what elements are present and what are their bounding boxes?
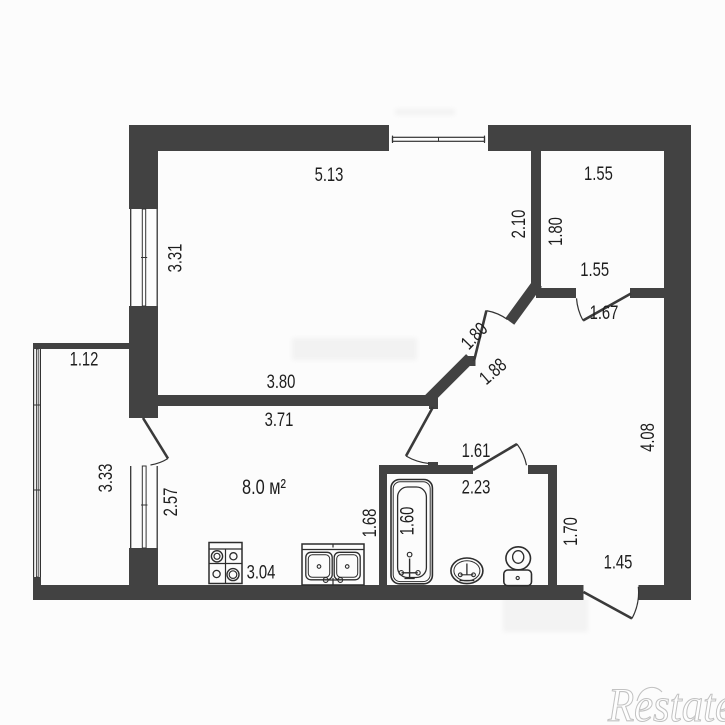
svg-text:1.61: 1.61 — [462, 440, 491, 461]
svg-text:1.60: 1.60 — [397, 507, 418, 536]
svg-text:2.10: 2.10 — [508, 210, 529, 239]
svg-text:3.33: 3.33 — [95, 464, 116, 493]
svg-text:1.12: 1.12 — [70, 349, 99, 370]
svg-text:3.04: 3.04 — [247, 562, 276, 583]
svg-text:3.31: 3.31 — [165, 244, 186, 273]
svg-text:1.80: 1.80 — [545, 217, 566, 246]
svg-text:Restate: Restate — [607, 679, 725, 725]
svg-text:3.71: 3.71 — [265, 409, 294, 430]
svg-text:1.45: 1.45 — [604, 552, 633, 573]
svg-text:1.67: 1.67 — [590, 302, 619, 323]
svg-text:5.13: 5.13 — [315, 164, 344, 185]
svg-text:1.70: 1.70 — [560, 517, 581, 546]
svg-text:2.23: 2.23 — [462, 477, 491, 498]
svg-text:1.55: 1.55 — [584, 163, 613, 184]
svg-text:2.57: 2.57 — [160, 488, 181, 517]
svg-text:8.0 м²: 8.0 м² — [242, 475, 286, 498]
svg-text:1.55: 1.55 — [580, 259, 609, 280]
svg-text:4.08: 4.08 — [637, 423, 658, 452]
svg-text:3.80: 3.80 — [267, 371, 296, 392]
svg-text:1.68: 1.68 — [359, 509, 380, 538]
